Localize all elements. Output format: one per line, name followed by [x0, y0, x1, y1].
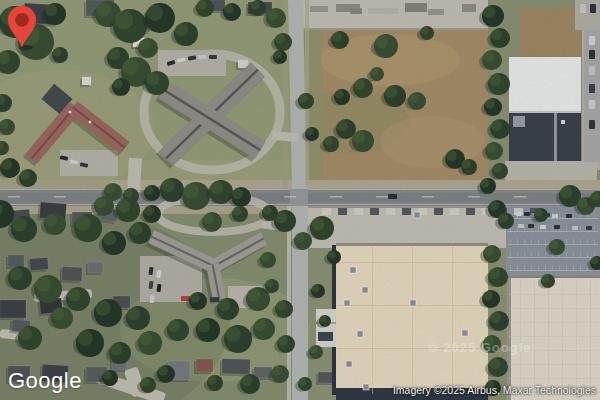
pin-shadow: [19, 45, 33, 50]
pin-body: [8, 6, 36, 48]
pin-dot: [15, 13, 29, 27]
imagery-attribution: Imagery ©2025 Airbus, Maxar Technologies: [393, 384, 596, 396]
map-marker-pin[interactable]: [0, 0, 44, 52]
google-logo[interactable]: Google: [8, 368, 82, 394]
map-viewport[interactable]: © 2025 Google Google Imagery ©2025 Airbu…: [0, 0, 600, 400]
copyright-watermark: © 2025 Google: [428, 340, 532, 355]
